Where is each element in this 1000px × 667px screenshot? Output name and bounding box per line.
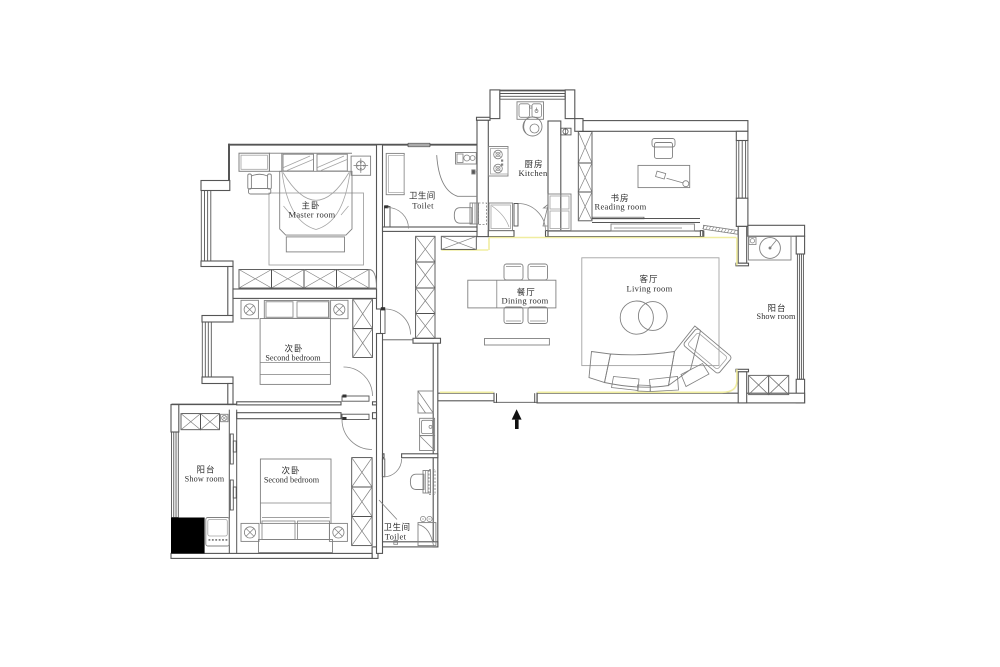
- svg-text:Kitchen: Kitchen: [518, 168, 547, 178]
- svg-text:次卧: 次卧: [281, 466, 300, 476]
- svg-text:Second bedroom: Second bedroom: [264, 476, 320, 485]
- svg-text:Toilet: Toilet: [412, 201, 434, 211]
- svg-text:Living room: Living room: [626, 284, 672, 294]
- svg-text:Show room: Show room: [185, 475, 225, 484]
- svg-text:阳台: 阳台: [196, 465, 215, 475]
- svg-text:Toilet: Toilet: [385, 532, 407, 542]
- svg-text:卫生间: 卫生间: [384, 522, 411, 532]
- svg-text:Show room: Show room: [757, 312, 796, 321]
- svg-text:次卧: 次卧: [284, 344, 303, 354]
- svg-text:客厅: 客厅: [639, 274, 658, 284]
- svg-text:Second bedroom: Second bedroom: [265, 354, 321, 363]
- svg-text:Master room: Master room: [289, 210, 336, 220]
- svg-text:卫生间: 卫生间: [409, 191, 436, 201]
- svg-text:Reading room: Reading room: [595, 202, 647, 212]
- svg-text:Dining room: Dining room: [502, 296, 549, 306]
